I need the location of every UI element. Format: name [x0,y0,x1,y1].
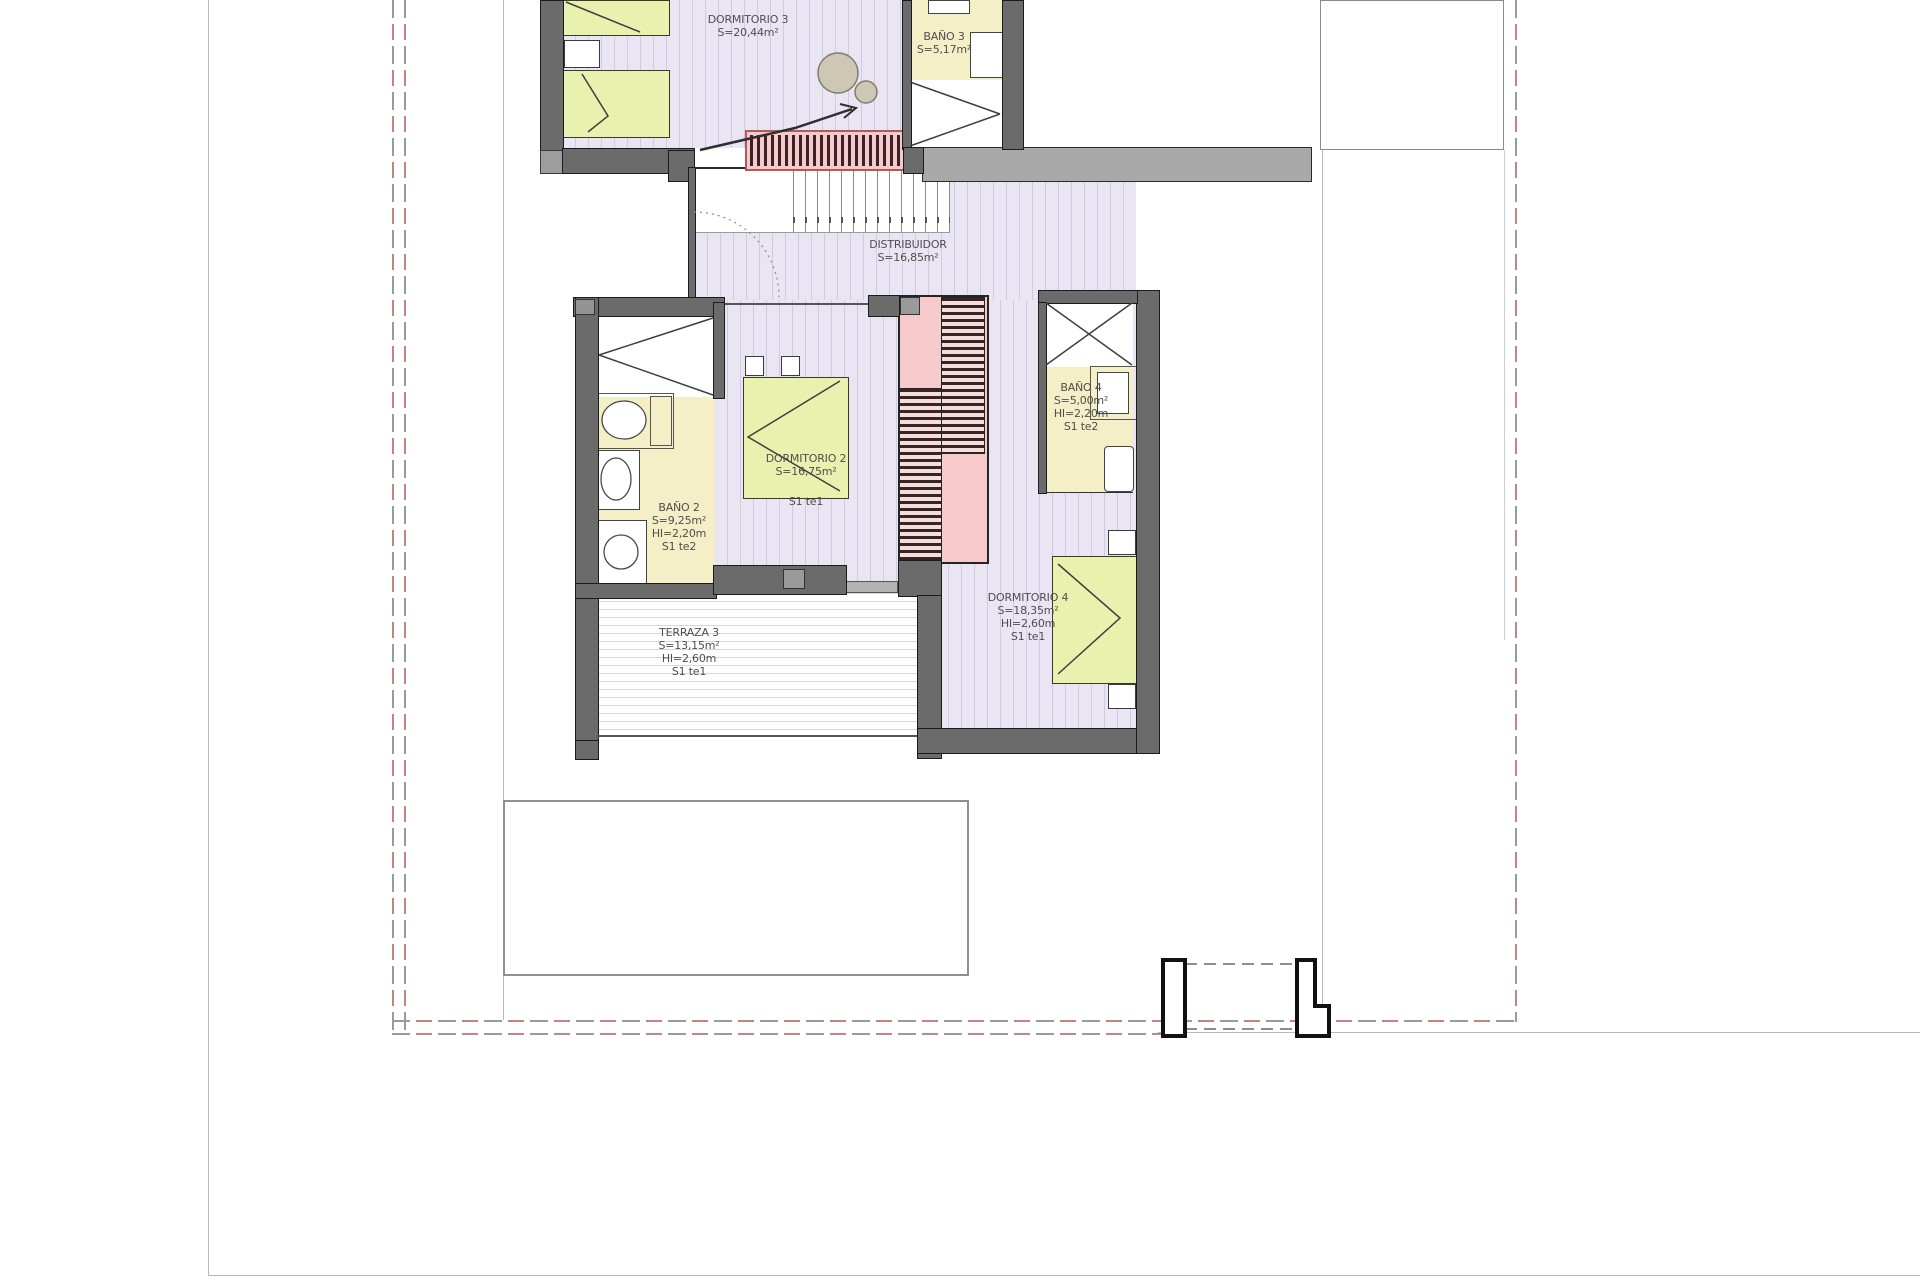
room-area: S=9,25m² [652,514,706,527]
wall-bano4-top [1038,290,1138,304]
wall-top-block-right [1002,0,1024,150]
terraza-edge-bottom [597,735,917,737]
gate-pillar-right [1297,960,1329,1036]
nightstand-dormitorio-2-a [745,356,764,376]
wall-bano2-bottom [575,583,717,599]
stair-treads-upper [693,167,950,233]
wall-closet2-right [713,302,725,399]
room-ref: S1 te1 [658,665,719,678]
room-area: S=18,35m² [988,604,1069,617]
room-name: BAÑO 4 [1054,381,1108,394]
gate-dash-top [1185,963,1295,965]
label-bano-4: BAÑO 4 S=5,00m² HI=2,20m S1 te2 [1054,381,1108,433]
nightstand-dormitorio-4-b [1108,684,1136,709]
wall-top-block-left [540,0,564,152]
plot-boundary-bottom-outer [392,1020,1516,1022]
room-area: S=5,00m² [1054,394,1108,407]
label-dormitorio-2: DORMITORIO 2 S=16,75m² [766,452,847,478]
toilet-bano-4 [1104,446,1134,492]
site-line-left [208,0,209,1276]
site-line-bottom [208,1275,1920,1276]
wall-terraza-right [917,595,942,739]
room-area: S=16,75m² [766,465,847,478]
stair-landing-post [900,297,920,315]
neighbor-structure-rect [1320,0,1504,150]
floor-terraza-3 [597,593,917,737]
bed-dormitorio-2 [743,377,849,499]
room-name: DISTRIBUIDOR [869,238,947,251]
wall-bano4-left [1038,302,1047,494]
closet-dormitorio-2 [597,315,715,397]
toilet-bano-2 [594,450,640,510]
site-line-bottom-right [1158,1032,1920,1033]
stair-tread-numbers [793,217,950,223]
room-name: BAÑO 3 [917,30,971,43]
room-area: S=13,15m² [658,639,719,652]
label-distribuidor: DISTRIBUIDOR S=16,85m² [869,238,947,264]
wall-dorm3-bano3 [902,0,912,150]
pillar-terraza [783,569,805,589]
gate-dash-bottom [1185,1028,1295,1030]
gate-pillar-left [1163,960,1185,1036]
nightstand-dormitorio-3 [564,40,600,68]
label-bano-2: BAÑO 2 S=9,25m² HI=2,20m S1 te2 [652,501,706,553]
room-name: DORMITORIO 3 [708,13,789,26]
room-height: HI=2,60m [988,617,1069,630]
stair-flight-left [899,388,942,560]
wall-dorm4-bottom [917,728,1160,754]
nightstand-dormitorio-4-a [1108,530,1136,555]
stair-flight-right [941,297,985,454]
wall-terraza-top [713,565,847,595]
label-dormitorio-2-ref: S1 te1 [789,495,823,508]
plot-boundary-bottom-inner [392,1033,1165,1035]
plot-boundary-left-inner [404,0,406,1034]
bed-dormitorio-3-b [563,70,670,138]
site-line-right-secondary [1504,150,1505,640]
stair-railing [745,130,909,171]
toilet-bano-3 [928,0,970,14]
pillar-mid-block [575,299,595,315]
room-height: HI=2,20m [1054,407,1108,420]
room-ref: S1 te2 [652,540,706,553]
room-name: DORMITORIO 2 [766,452,847,465]
plot-boundary-right [1515,0,1517,1022]
closet-bano-4 [1045,302,1133,367]
room-height: HI=2,20m [652,527,706,540]
room-name: TERRAZA 3 [658,626,719,639]
counter-end-bano-2 [650,396,672,446]
room-area: S=20,44m² [708,26,789,39]
room-name: BAÑO 2 [652,501,706,514]
window-sill-terraza [845,581,898,593]
label-dormitorio-3: DORMITORIO 3 S=20,44m² [708,13,789,39]
wall-right-main [1136,290,1160,754]
washbasin-bano-3 [970,32,1004,78]
room-name: DORMITORIO 4 [988,591,1069,604]
wall-cap-left [540,150,564,174]
bidet-bano-2 [598,520,647,586]
wall-void-divider [688,167,696,302]
wall-corner-terraza-bl [575,740,599,760]
room-ref: S1 te1 [988,630,1069,643]
closet-bano-3 [910,80,1002,148]
plot-boundary-left-outer [392,0,394,1034]
site-line-right-neighbor [1322,0,1323,1033]
room-ref: S1 te1 [789,495,823,508]
room-area: S=16,85m² [869,251,947,264]
wall-corner-stair [898,560,942,597]
label-bano-3: BAÑO 3 S=5,17m² [917,30,971,56]
room-height: HI=2,60m [658,652,719,665]
room-area: S=5,17m² [917,43,971,56]
wall-stub-dorm2 [868,295,900,317]
bed-dormitorio-3-a [563,0,670,36]
floor-plan-canvas: DORMITORIO 3 S=20,44m² BAÑO 3 S=5,17m² D… [0,0,1920,1280]
railing-balusters [750,135,904,166]
wall-left-main [575,297,599,760]
label-terraza-3: TERRAZA 3 S=13,15m² HI=2,60m S1 te1 [658,626,719,678]
wall-cap-band [903,147,924,174]
roof-ledge-band [922,147,1312,182]
room-ref: S1 te2 [1054,420,1108,433]
label-dormitorio-4: DORMITORIO 4 S=18,35m² HI=2,60m S1 te1 [988,591,1069,643]
nightstand-dormitorio-2-b [781,356,800,376]
pool [503,800,969,976]
